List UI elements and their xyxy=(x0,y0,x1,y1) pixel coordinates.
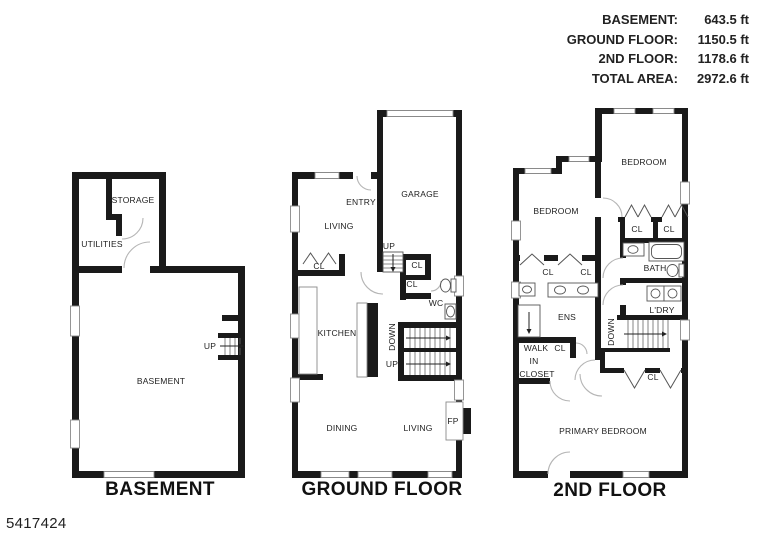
stair-label-up-basement: UP xyxy=(204,341,216,351)
legend-value: 643.5 ft xyxy=(691,10,749,30)
legend-row: GROUND FLOOR: 1150.5 ft xyxy=(567,30,749,50)
legend-row: BASEMENT: 643.5 ft xyxy=(567,10,749,30)
room-label-bath: BATH xyxy=(644,263,667,273)
legend-label: 2ND FLOOR: xyxy=(599,49,678,69)
basement-stairs xyxy=(220,338,244,355)
room-label-wc: WC xyxy=(429,298,444,308)
room-label-primary-bedroom: PRIMARY BEDROOM xyxy=(559,426,647,436)
closet-label-bed1-2: CL xyxy=(580,267,591,277)
room-label-garage: GARAGE xyxy=(401,189,439,199)
stair-label-down-second: DOWN xyxy=(606,318,616,346)
room-label-bedroom-left: BEDROOM xyxy=(533,206,578,216)
closet-label-bottom: CL xyxy=(647,372,658,382)
area-legend: BASEMENT: 643.5 ft GROUND FLOOR: 1150.5 … xyxy=(567,10,749,88)
closet-label-bed1-1: CL xyxy=(542,267,553,277)
basement-walls xyxy=(72,172,245,478)
second-stairs xyxy=(624,320,668,348)
ens-fixtures xyxy=(518,283,598,337)
plan-title-ground: GROUND FLOOR xyxy=(301,479,462,501)
plan-title-second: 2ND FLOOR xyxy=(553,480,666,502)
basement-plan xyxy=(71,172,246,478)
stair-label-down-ground: DOWN xyxy=(387,323,397,351)
closet-label-1: CL xyxy=(411,260,422,270)
room-label-ens: ENS xyxy=(558,312,576,322)
legend-row: TOTAL AREA: 2972.6 ft xyxy=(567,69,749,89)
room-label-storage: STORAGE xyxy=(112,195,155,205)
legend-row: 2ND FLOOR: 1178.6 ft xyxy=(567,49,749,69)
closet-label-top-2: CL xyxy=(663,224,674,234)
stair-label-up-garage: UP xyxy=(383,241,395,251)
room-label-entry: ENTRY xyxy=(346,197,376,207)
legend-label: TOTAL AREA: xyxy=(592,69,678,89)
legend-value: 1150.5 ft xyxy=(691,30,749,50)
closet-label-top-1: CL xyxy=(631,224,642,234)
closet-label-left: CL xyxy=(313,261,324,271)
room-label-basement: BASEMENT xyxy=(137,376,185,386)
stair-label-up-ground: UP xyxy=(386,359,398,369)
fireplace-label: FP xyxy=(447,416,458,426)
laundry-fixtures xyxy=(647,286,681,301)
room-label-utilities: UTILITIES xyxy=(81,239,122,249)
garage-stairs xyxy=(383,252,403,272)
room-label-in: IN xyxy=(530,356,539,366)
ground-plan xyxy=(291,110,472,478)
listing-id: 5417424 xyxy=(6,515,67,532)
room-label-kitchen: KITCHEN xyxy=(318,328,357,338)
room-label-living-upper: LIVING xyxy=(324,221,353,231)
basement-door-arcs xyxy=(122,218,150,268)
floorplan-page: BASEMENT: 643.5 ft GROUND FLOOR: 1150.5 … xyxy=(0,0,768,538)
legend-value: 1178.6 ft xyxy=(691,49,749,69)
closet-label-2: CL xyxy=(406,279,417,289)
room-label-living-lower: LIVING xyxy=(403,423,432,433)
room-label-closet-word: CLOSET xyxy=(519,369,554,379)
room-label-bedroom-right: BEDROOM xyxy=(621,157,666,167)
legend-label: BASEMENT: xyxy=(602,10,678,30)
basement-windows xyxy=(71,306,155,478)
closet-label-mid: CL xyxy=(554,343,565,353)
room-label-walk: WALK xyxy=(524,343,549,353)
room-label-dining: DINING xyxy=(327,423,358,433)
room-label-laundry: L'DRY xyxy=(649,305,674,315)
legend-value: 2972.6 ft xyxy=(691,69,749,89)
legend-label: GROUND FLOOR: xyxy=(567,30,678,50)
plan-title-basement: BASEMENT xyxy=(105,479,215,501)
